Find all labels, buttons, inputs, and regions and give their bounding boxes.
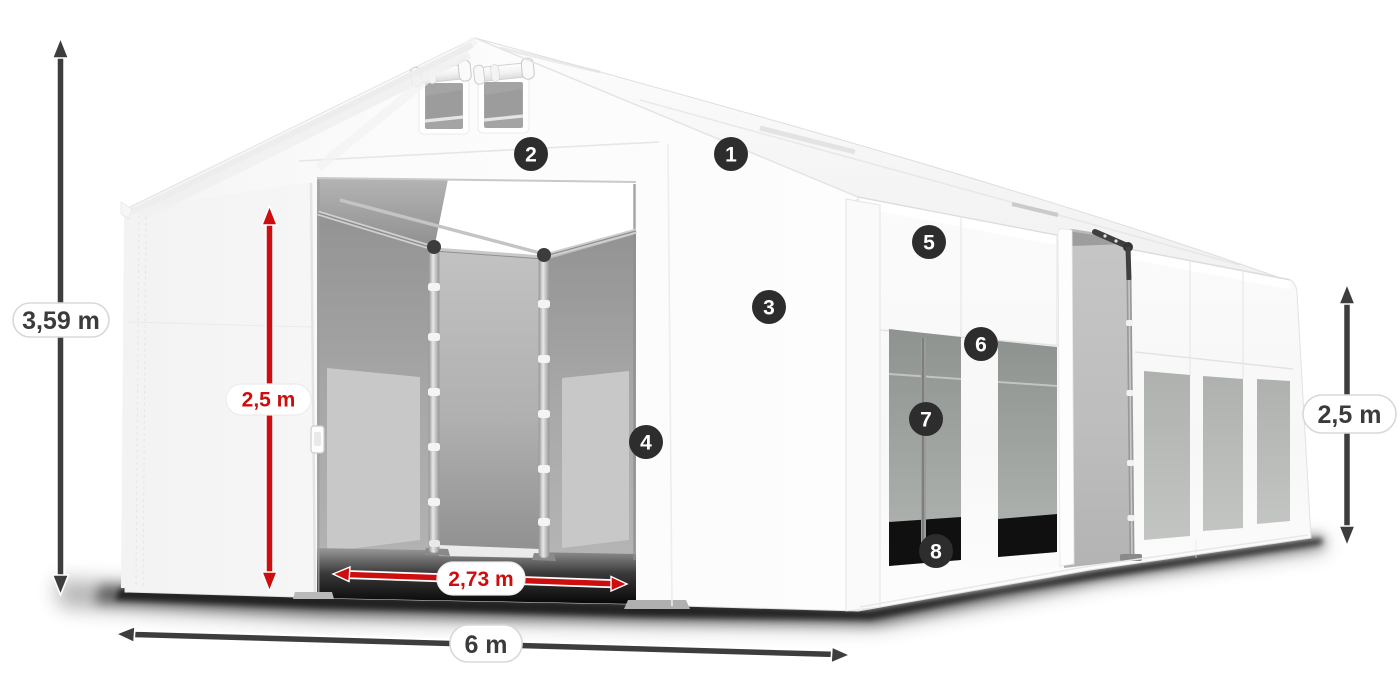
svg-text:3,59 m: 3,59 m: [22, 307, 100, 335]
svg-text:2,5 m: 2,5 m: [1318, 401, 1382, 429]
svg-text:4: 4: [640, 432, 652, 455]
svg-text:1: 1: [725, 144, 737, 167]
svg-text:3: 3: [763, 297, 775, 320]
svg-text:8: 8: [930, 541, 942, 564]
svg-text:2,73 m: 2,73 m: [448, 568, 513, 591]
svg-text:6 m: 6 m: [464, 631, 507, 659]
svg-text:2: 2: [525, 144, 537, 167]
svg-text:2,5 m: 2,5 m: [242, 389, 296, 412]
svg-text:5: 5: [923, 232, 935, 255]
svg-text:7: 7: [920, 409, 932, 432]
svg-text:6: 6: [975, 334, 987, 357]
